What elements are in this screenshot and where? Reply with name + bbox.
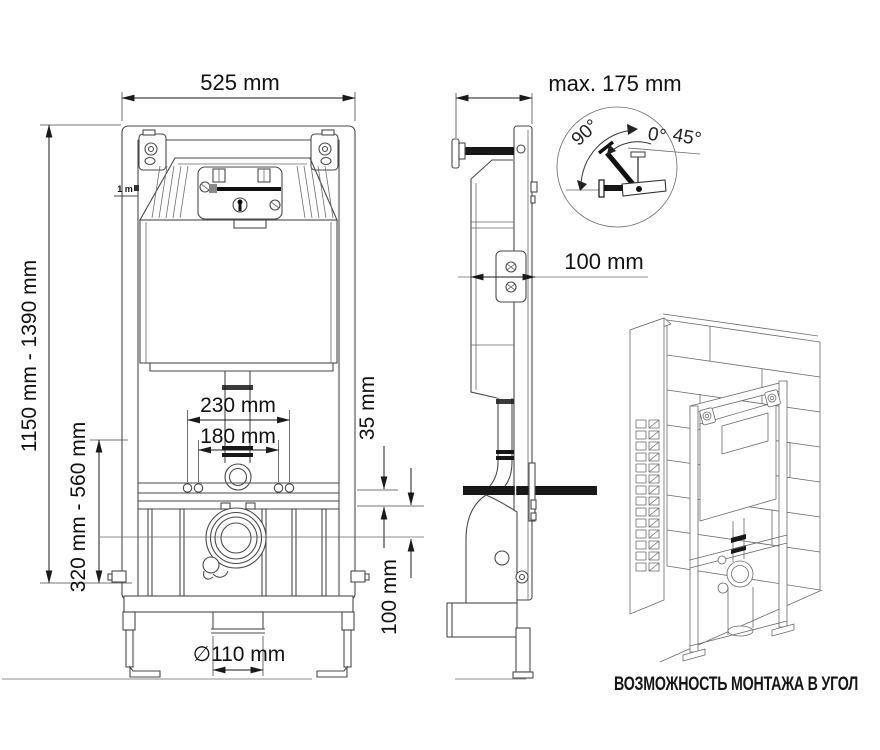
rod-holder: [209, 184, 217, 193]
dim-full-height: 1150 mm - 1390 mm: [18, 260, 41, 452]
bottom-rail: [124, 596, 353, 612]
dim-offset: 35 mm: [356, 376, 379, 440]
flush-access-panel: [198, 167, 282, 224]
dim-width: 525 mm: [200, 70, 279, 95]
angle-detail: 90° 0° 45°: [557, 107, 703, 227]
mounting-bracket-right: [311, 130, 338, 170]
wall-anchor-rod: [452, 139, 514, 168]
block-wall: [630, 318, 671, 614]
angle-45-label: 45°: [671, 125, 703, 151]
outlet-stub-side: [447, 603, 517, 637]
technical-drawing-page: 1 m 525 mm 1150 mm - 1390 mm 320 mm - 56…: [0, 0, 880, 750]
flush-bend-fitting: [225, 464, 251, 490]
leg-left: [123, 612, 160, 677]
profile-hole: [517, 145, 525, 153]
dim-depth: max. 175 mm: [548, 71, 681, 96]
dim-outlet-center: 100 mm: [378, 559, 401, 635]
corner-illustration: ВОЗМОЖНОСТЬ МОНТАЖА В УГОЛ: [614, 314, 858, 695]
retaining-clip: [203, 557, 219, 573]
angle-0-label: 0°: [646, 124, 668, 148]
outlet-stub: [211, 612, 265, 633]
angle-90-label: 90°: [568, 115, 603, 150]
side-dimensions: max. 175 mm 100 mm: [456, 71, 682, 277]
adjust-screw: [516, 571, 528, 583]
corner-caption: ВОЗМОЖНОСТЬ МОНТАЖА В УГОЛ: [614, 674, 858, 695]
dim-fixing-outer: 230 mm: [200, 394, 276, 417]
dim-fixing-inner: 180 mm: [200, 425, 276, 448]
dim-wall-distance: 100 mm: [564, 249, 643, 274]
height-mark-label: 1 m: [117, 184, 133, 194]
leg-right: [317, 612, 354, 677]
flush-pipe-side: [485, 398, 514, 491]
leg-side: [513, 628, 533, 678]
dim-lower-height: 320 mm - 560 mm: [67, 422, 90, 592]
waste-elbow-side: [466, 495, 517, 603]
dim-outlet-diameter: ∅110 mm: [193, 643, 286, 666]
installation-frame-drawing: 1 m 525 mm 1150 mm - 1390 mm 320 mm - 56…: [0, 0, 880, 750]
mounting-bracket-left: [139, 130, 166, 170]
cistern-tank: [140, 220, 337, 371]
